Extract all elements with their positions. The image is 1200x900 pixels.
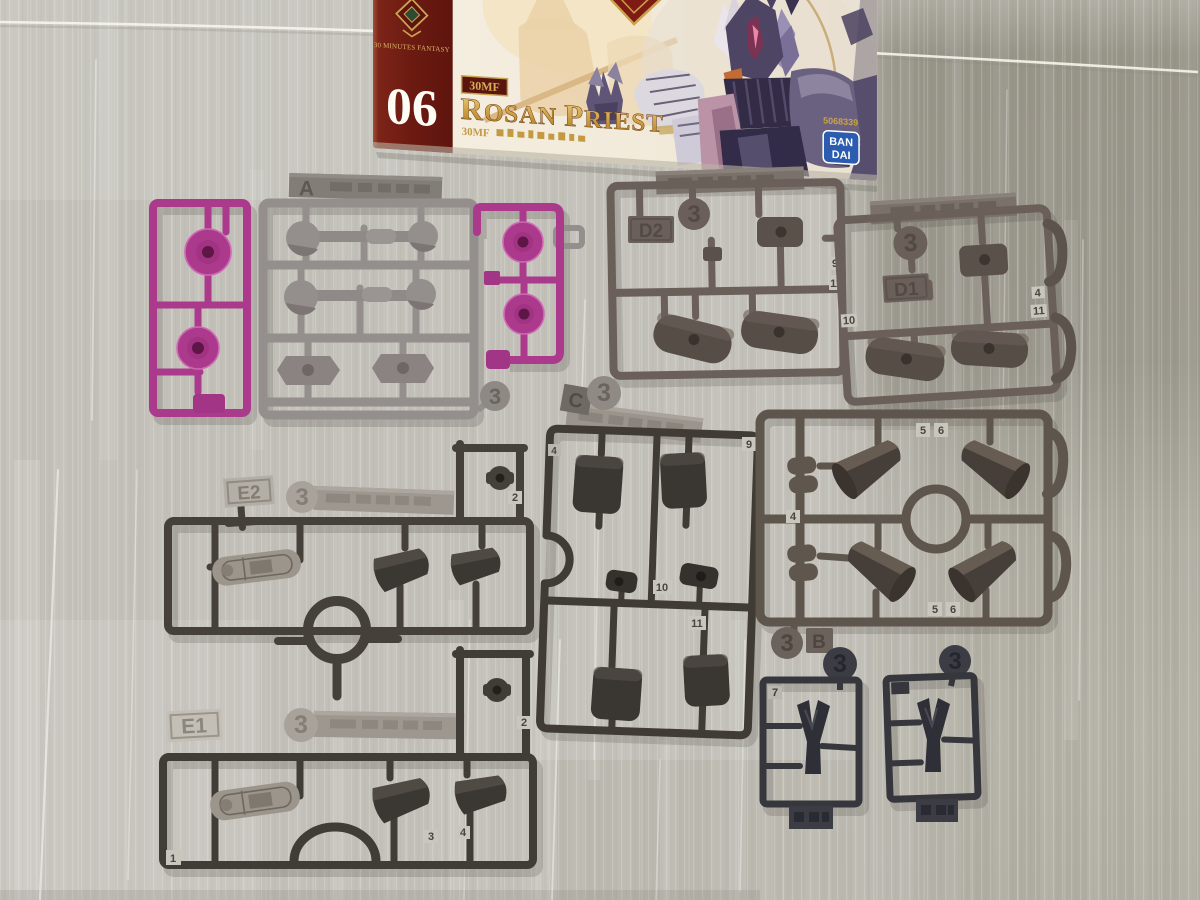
svg-text:3: 3 [833,650,847,678]
svg-text:11: 11 [1033,305,1045,318]
svg-text:E1: E1 [181,714,208,738]
svg-text:3: 3 [489,384,501,409]
svg-text:3: 3 [780,630,793,657]
svg-text:2: 2 [512,492,518,504]
svg-text:4: 4 [551,446,557,457]
svg-text:2: 2 [521,717,527,729]
svg-text:3: 3 [687,201,700,228]
svg-text:E2: E2 [237,482,262,505]
svg-text:1: 1 [170,853,176,865]
svg-text:5: 5 [932,604,938,616]
svg-text:30MF: 30MF [462,126,490,140]
svg-text:10: 10 [656,582,668,594]
svg-text:D1: D1 [894,279,920,301]
svg-text:06: 06 [386,78,438,138]
svg-text:11: 11 [691,618,703,630]
svg-text:3: 3 [597,379,611,407]
svg-text:10: 10 [843,315,856,328]
svg-text:3: 3 [294,711,308,739]
svg-text:D2: D2 [639,221,663,242]
svg-text:4: 4 [790,511,797,523]
svg-text:9: 9 [746,439,752,451]
svg-text:5: 5 [920,425,926,437]
svg-text:7: 7 [772,687,778,699]
svg-text:3: 3 [295,484,308,511]
svg-text:3: 3 [903,229,919,258]
svg-text:4: 4 [460,827,467,839]
svg-text:3: 3 [428,831,434,843]
svg-text:BAN: BAN [829,136,853,150]
svg-text:6: 6 [950,604,956,616]
svg-text:B: B [812,632,826,653]
svg-text:6: 6 [938,425,944,437]
svg-text:3: 3 [948,648,961,675]
svg-text:DAI: DAI [832,149,851,162]
svg-text:A: A [299,177,315,200]
